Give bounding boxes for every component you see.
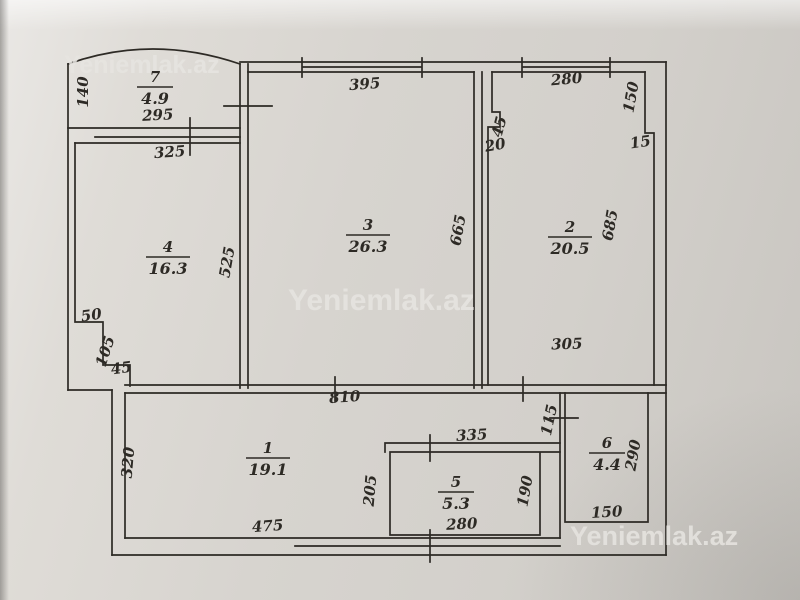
room-label-1: 119.1 xyxy=(246,439,290,479)
floor-plan-scan: Yeniemlak.azYeniemlak.azYeniemlak.az 140… xyxy=(0,0,800,600)
floor-plan-drawing: Yeniemlak.azYeniemlak.azYeniemlak.az 140… xyxy=(0,0,800,600)
room-area-3: 26.3 xyxy=(348,237,388,256)
dimension-label-325-2: 325 xyxy=(153,142,185,162)
wall-hall-top xyxy=(125,385,666,393)
wall-room1-bottom xyxy=(125,538,560,546)
window-room3-top xyxy=(302,58,422,77)
dimension-label-280-4: 280 xyxy=(549,69,583,90)
room-area-5: 5.3 xyxy=(442,494,470,513)
dimension-label-395-3: 395 xyxy=(348,74,380,94)
dimension-label-280-24: 280 xyxy=(445,514,479,534)
room-area-2: 20.5 xyxy=(550,239,590,258)
dimension-label-335-18: 335 xyxy=(456,425,488,445)
dimension-label-190-21: 190 xyxy=(513,474,536,509)
dimension-label-295-1: 295 xyxy=(141,105,174,125)
room-number-5: 5 xyxy=(451,473,461,491)
room-number-6: 6 xyxy=(602,434,613,452)
dimension-label-665-9: 665 xyxy=(446,213,469,247)
dimension-label-685-10: 685 xyxy=(598,208,621,242)
room-label-3: 326.3 xyxy=(346,216,390,256)
dimension-label-150-25: 150 xyxy=(591,502,624,522)
dimension-label-45-15: 45 xyxy=(110,358,133,379)
room-area-4: 16.3 xyxy=(149,259,188,278)
room-number-4: 4 xyxy=(163,238,173,256)
dimension-label-150-7: 150 xyxy=(619,80,642,115)
room-area-6: 4.4 xyxy=(593,455,621,474)
room-number-7: 7 xyxy=(150,68,161,86)
wall-divider-4-3 xyxy=(240,64,248,388)
dimension-label-140-0: 140 xyxy=(74,76,92,108)
wall-room2-right xyxy=(645,72,654,385)
dimension-label-115-19: 115 xyxy=(537,403,561,437)
room-label-6: 64.4 xyxy=(589,434,625,474)
dimension-label-305-12: 305 xyxy=(551,334,583,353)
room-number-2: 2 xyxy=(564,218,575,236)
room-number-3: 3 xyxy=(363,216,373,234)
watermark-0: Yeniemlak.az xyxy=(64,51,220,79)
room-label-5: 55.3 xyxy=(438,473,474,513)
room-number-1: 1 xyxy=(263,439,273,457)
watermark-2: Yeniemlak.az xyxy=(570,521,738,551)
dimension-label-475-23: 475 xyxy=(251,516,283,536)
room-label-4: 416.3 xyxy=(146,238,190,278)
wall-divider-3-2 xyxy=(474,72,482,388)
watermark-1: Yeniemlak.az xyxy=(288,284,475,317)
dimension-label-810-16: 810 xyxy=(328,387,361,407)
dimension-label-525-11: 525 xyxy=(215,245,238,279)
dimension-label-205-20: 205 xyxy=(360,474,381,508)
dimension-label-15-8: 15 xyxy=(629,132,652,153)
dimension-label-50-13: 50 xyxy=(80,305,104,326)
room-area-7: 4.9 xyxy=(141,89,169,108)
room-area-1: 19.1 xyxy=(249,460,288,479)
dimension-label-320-17: 320 xyxy=(118,446,139,479)
room-label-2: 220.5 xyxy=(548,218,592,258)
watermarks: Yeniemlak.azYeniemlak.azYeniemlak.az xyxy=(64,51,738,551)
dimension-label-290-22: 290 xyxy=(621,438,644,474)
dimension-label-20-6: 20 xyxy=(482,134,507,156)
window-balcony xyxy=(68,128,240,137)
